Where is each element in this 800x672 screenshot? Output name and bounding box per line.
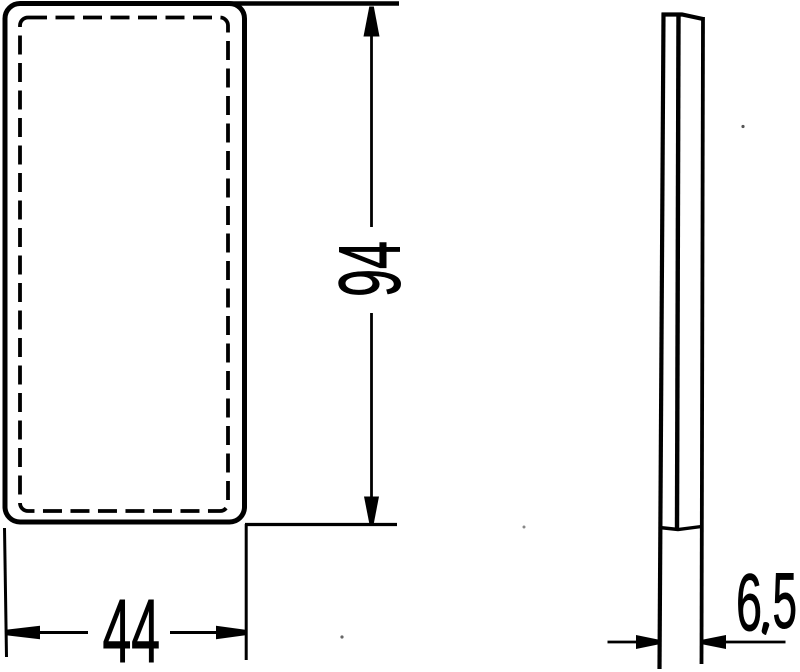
- svg-text:44: 44: [103, 582, 161, 672]
- svg-text:6: 6: [736, 558, 762, 648]
- svg-text:94: 94: [322, 241, 419, 297]
- svg-text:5: 5: [773, 556, 798, 645]
